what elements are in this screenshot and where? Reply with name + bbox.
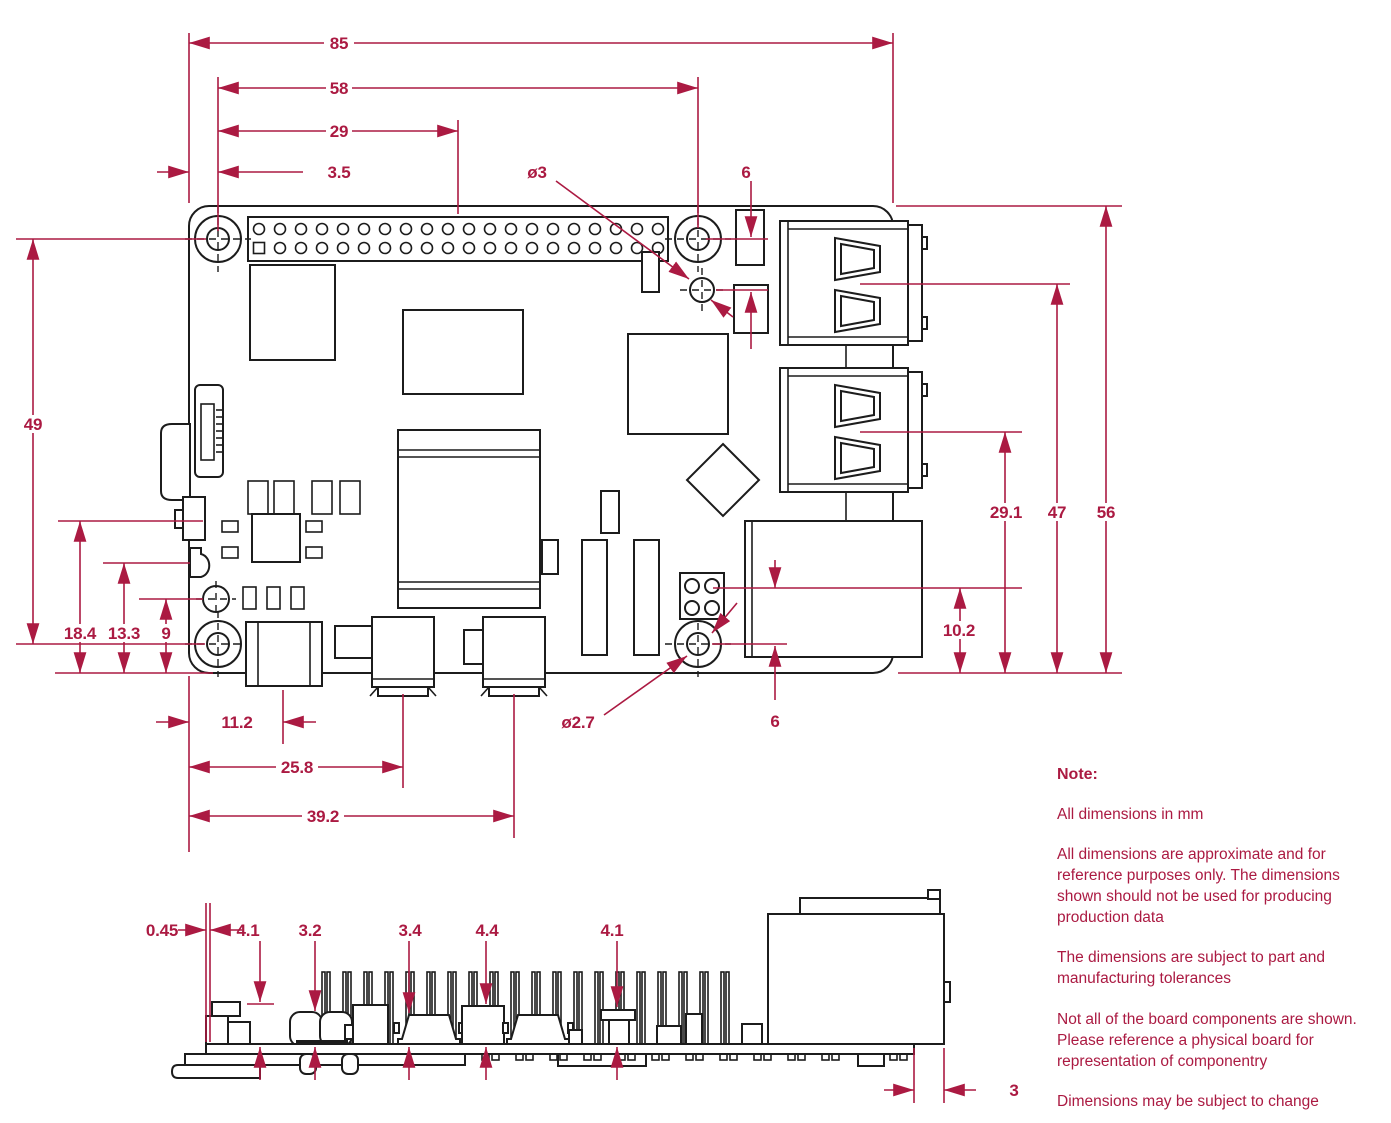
ethernet-port bbox=[745, 521, 922, 657]
micro-hdmi-port-0 bbox=[370, 617, 436, 696]
notes-title: Note: bbox=[1057, 766, 1357, 784]
side-underside bbox=[172, 1054, 907, 1078]
dim-eth-center-height: 10.2 bbox=[943, 621, 975, 640]
dim-board-height: 56 bbox=[1097, 503, 1116, 522]
component-bottom-1 bbox=[335, 626, 373, 658]
top-view bbox=[161, 206, 927, 696]
dim-hdmi1-offset: 39.2 bbox=[307, 807, 339, 826]
dim-top-hole-dia: ø3 bbox=[527, 163, 546, 182]
side-view bbox=[172, 890, 950, 1078]
chip-top-left bbox=[250, 265, 335, 360]
dim-usb-upper-center: 47 bbox=[1048, 503, 1067, 522]
dimension-drawing: 85 58 29 3.5 ø3 6 49 18.4 13.3 9 11.2 ø2… bbox=[0, 0, 1391, 1123]
notes-block: Note: All dimensions in mm All dimension… bbox=[1057, 766, 1357, 1123]
side-sd-card bbox=[172, 1065, 260, 1078]
note-paragraph: All dimensions in mm bbox=[1057, 804, 1357, 825]
note-paragraph: All dimensions are approximate and for r… bbox=[1057, 844, 1357, 928]
dim-hole-span-h: 58 bbox=[330, 79, 349, 98]
dim-side-gap: 0.45 bbox=[146, 921, 178, 940]
slot-2 bbox=[634, 540, 659, 655]
dim-side-h2: 3.2 bbox=[298, 921, 321, 940]
dim-edge-to-hole: 3.5 bbox=[327, 163, 350, 182]
dim-eth-hole-offset: 6 bbox=[770, 712, 779, 731]
dim-hole-span-v: 49 bbox=[24, 415, 43, 434]
wireless-module bbox=[628, 334, 728, 434]
note-paragraph: Dimensions may be subject to change bbox=[1057, 1091, 1357, 1112]
dim-top-hole-offset: 6 bbox=[741, 163, 750, 182]
sd-card bbox=[161, 424, 190, 500]
side-component-3 bbox=[601, 1010, 635, 1044]
note-paragraph: Not all of the board components are show… bbox=[1057, 1009, 1357, 1072]
side-usb-ethernet-box bbox=[768, 890, 950, 1044]
usb-stack-upper bbox=[780, 221, 927, 345]
dim-side-h5: 4.1 bbox=[600, 921, 623, 940]
side-component-1 bbox=[353, 1005, 388, 1044]
dim-left-3: 9 bbox=[161, 624, 170, 643]
usb-stack-lower bbox=[780, 368, 927, 492]
side-component-2 bbox=[462, 1006, 504, 1044]
dim-mount-hole-dia: ø2.7 bbox=[561, 713, 594, 732]
usb-c-power-port bbox=[246, 622, 322, 686]
soc-chip bbox=[403, 310, 523, 394]
dim-hdmi0-offset: 25.8 bbox=[281, 758, 313, 777]
note-paragraph: The dimensions are subject to part and m… bbox=[1057, 947, 1357, 989]
pcb-profile bbox=[206, 1044, 914, 1054]
dim-usb-lower-center: 29.1 bbox=[990, 503, 1022, 522]
dim-left-1: 18.4 bbox=[64, 624, 97, 643]
side-usb-c bbox=[290, 1012, 352, 1046]
slot-1 bbox=[582, 540, 607, 655]
dim-usbc-offset: 11.2 bbox=[221, 713, 252, 732]
dim-hole-to-gpio: 29 bbox=[330, 122, 349, 141]
dim-side-h1: 4.1 bbox=[236, 921, 259, 940]
dim-side-overhang: 3 bbox=[1009, 1081, 1018, 1100]
memory-chip bbox=[398, 430, 540, 608]
poe-header bbox=[680, 573, 724, 619]
micro-hdmi-port-1 bbox=[481, 617, 547, 696]
side-camera-connector bbox=[206, 1002, 250, 1044]
dim-board-width: 85 bbox=[330, 34, 349, 53]
dsi-connector bbox=[195, 385, 223, 477]
gpio-header bbox=[248, 217, 668, 261]
dim-side-h4: 4.4 bbox=[475, 921, 499, 940]
small-chip bbox=[252, 514, 300, 562]
dim-left-2: 13.3 bbox=[108, 624, 140, 643]
dim-side-h3: 3.4 bbox=[398, 921, 422, 940]
